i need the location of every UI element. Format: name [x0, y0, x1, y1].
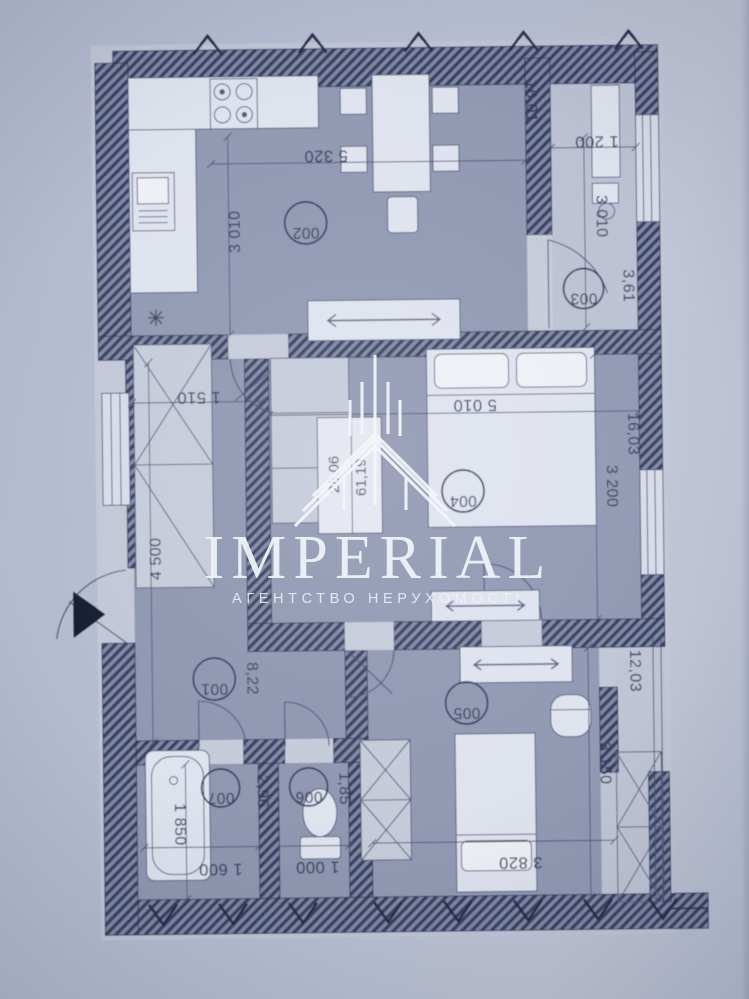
floorplan-svg: 5 320 1 200 3 010 3 010 1 510 5 010 3 20… — [0, 0, 749, 999]
wall-right-4 — [648, 771, 671, 901]
room-001-number: 001 — [201, 680, 229, 697]
wall-004-bottom-c — [542, 619, 665, 649]
floor-drain-icon — [148, 310, 164, 326]
room-003-area: 3,61 — [619, 269, 636, 302]
door-001-006-leaf — [285, 702, 286, 746]
room-004-number: 004 — [449, 492, 477, 509]
dim-loggia-top-width: 1 200 — [575, 132, 619, 151]
floor-plan: 5 320 1 200 3 010 3 010 1 510 5 010 3 20… — [49, 30, 708, 941]
dim-loggia-length: 3 010 — [592, 195, 610, 238]
watermark-tagline: АГЕНТСТВО НЕРУХОМОСТІ — [232, 591, 524, 607]
room-001-area: 8,22 — [243, 662, 260, 695]
wall-004-bottom-b — [394, 621, 482, 650]
window-right-mid — [640, 470, 664, 575]
wall-left-lower — [102, 643, 139, 935]
window-left — [102, 393, 130, 505]
photo-edge-shadow — [741, 0, 749, 999]
wall-bottom — [138, 893, 708, 935]
sofa — [308, 299, 460, 341]
dim-living-top-width: 5 320 — [304, 146, 348, 165]
room-005-area: 12,03 — [626, 650, 644, 693]
chair-005 — [551, 694, 592, 736]
dim-bathroom-width: 1 600 — [199, 860, 243, 879]
door-001-007-leaf — [199, 701, 200, 747]
room-007-number: 007 — [207, 789, 235, 806]
floorplan-photo: 5 320 1 200 3 010 3 010 1 510 5 010 3 20… — [0, 0, 749, 999]
closet-001 — [133, 344, 214, 588]
dim-kitchen-left-depth: 3 010 — [227, 210, 245, 253]
wall-right-1 — [635, 52, 659, 115]
dim-hall-height: 4 500 — [148, 537, 166, 580]
watermark-brand: IMPERIAL — [204, 524, 553, 592]
room-007-area: 2,96 — [253, 775, 270, 808]
wall-left-upper — [95, 63, 131, 338]
window-right-top — [635, 115, 659, 222]
dim-balcony-length: 3 150 — [596, 742, 614, 785]
room-005-number: 005 — [453, 704, 481, 721]
dim-bedroom2-width: 3 820 — [499, 853, 543, 872]
room-002-area: 16,01 — [522, 80, 540, 123]
stove-icon — [210, 78, 258, 129]
room-003-number: 003 — [570, 289, 598, 306]
dim-bedroom1-width: 5 010 — [453, 396, 497, 415]
wardrobe-005 — [360, 740, 411, 861]
room-002-number: 002 — [292, 224, 320, 241]
room-006-number: 006 — [295, 788, 323, 805]
sink-icon — [132, 172, 175, 231]
room-004-area: 16,03 — [624, 413, 642, 456]
wall-bath-top-b — [243, 739, 285, 764]
dim-hall-closet-width: 1 510 — [177, 388, 221, 407]
dim-wc-width: 1 000 — [296, 858, 340, 877]
dim-bedroom1-depth: 3 200 — [603, 465, 621, 508]
wall-004-bottom-a — [248, 622, 345, 651]
room-006-area: 1,85 — [335, 772, 352, 805]
dim-bathroom-height: 1 850 — [171, 803, 189, 846]
dresser-005 — [460, 646, 572, 683]
